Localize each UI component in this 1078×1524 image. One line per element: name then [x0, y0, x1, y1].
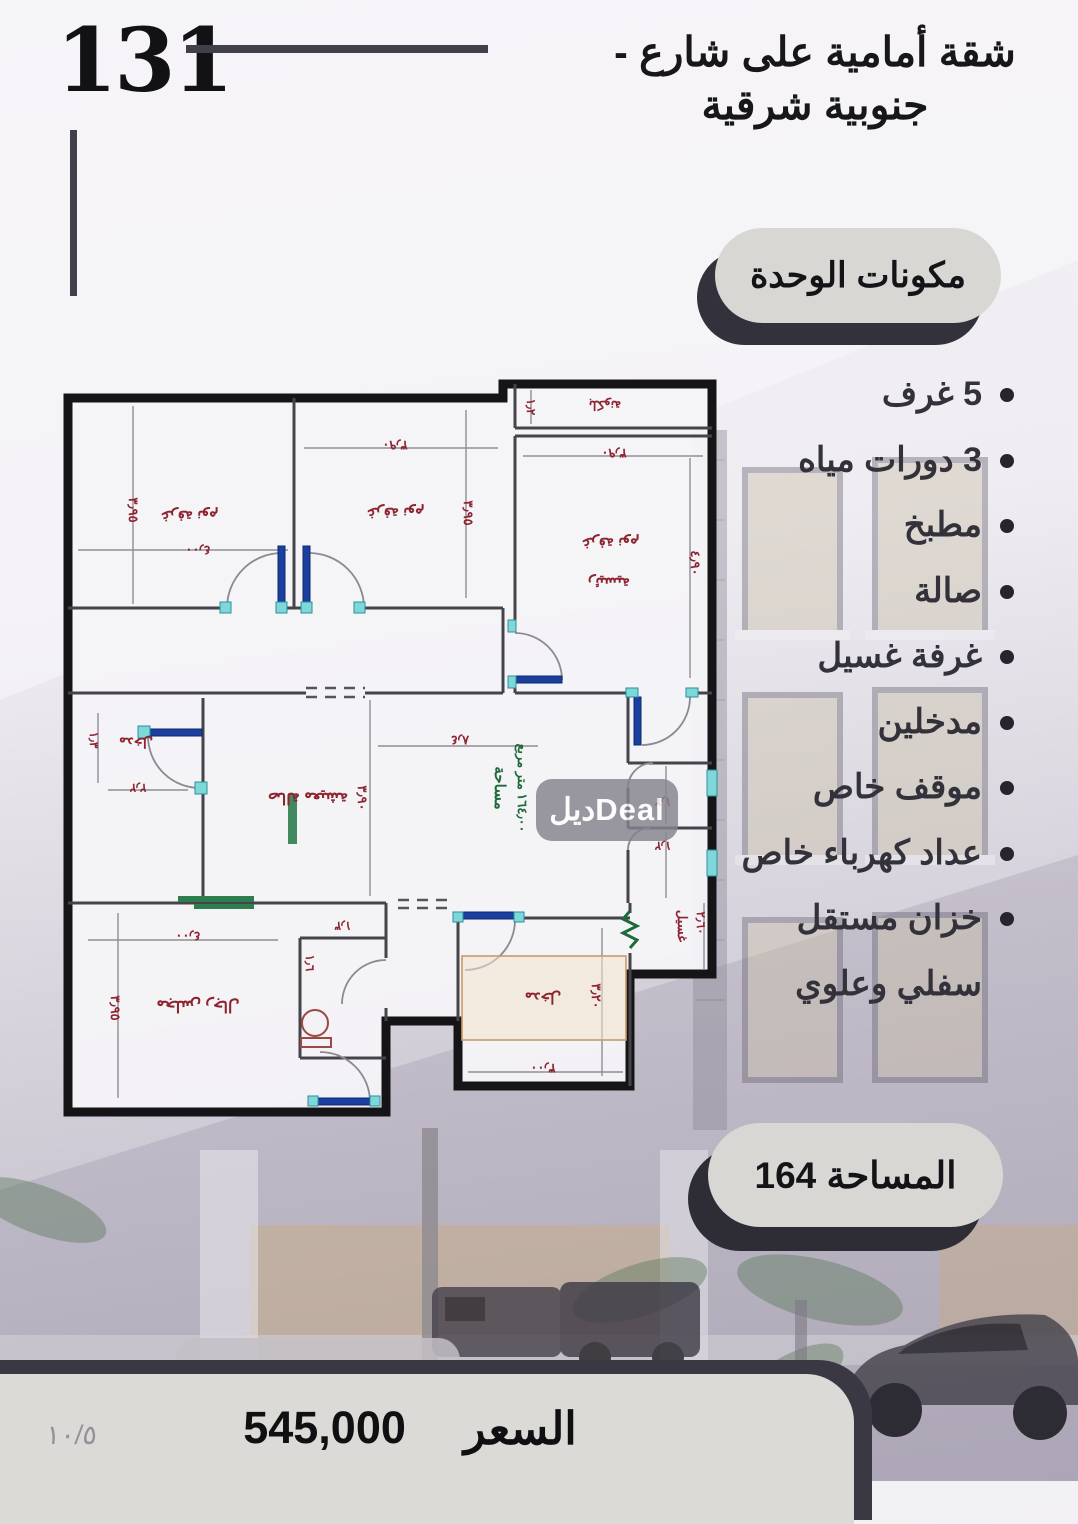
svg-text:٣٫٩٥: ٣٫٩٥	[126, 497, 141, 522]
watermark-badge: ديلDeal	[536, 779, 678, 841]
list-item: صالة	[678, 559, 1014, 625]
svg-text:١٦٤٫٠٠ متر مربع: ١٦٤٫٠٠ متر مربع	[514, 743, 530, 832]
svg-text:مدخل: مدخل	[119, 735, 153, 751]
list-item: مدخلين	[678, 690, 1014, 756]
svg-text:صالة معيشة: صالة معيشة	[268, 789, 348, 806]
list-item-label: مطبخ	[904, 493, 982, 559]
bullet-icon	[1000, 847, 1014, 861]
list-item-label: 3 دورات مياه	[798, 428, 982, 494]
svg-text:١٫٣: ١٫٣	[334, 919, 351, 933]
svg-text:٣٫٠٠: ٣٫٠٠	[530, 1061, 555, 1076]
list-item: مطبخ	[678, 493, 1014, 559]
svg-text:٣٫٩٥: ٣٫٩٥	[461, 500, 476, 525]
bullet-icon	[1000, 781, 1014, 795]
svg-text:١٫٢: ١٫٢	[524, 399, 538, 416]
svg-text:غرفة نوم: غرفة نوم	[161, 507, 218, 524]
svg-text:مساحة: مساحة	[491, 766, 508, 809]
svg-text:٣٫٩٠: ٣٫٩٠	[601, 446, 626, 461]
list-item: خزان مستقل سفلي وعلوي	[678, 886, 1014, 1017]
svg-text:٢٫٢: ٢٫٢	[129, 781, 146, 795]
svg-text:غرفة نوم: غرفة نوم	[367, 504, 424, 521]
components-heading-pill: مكونات الوحدة	[715, 228, 1001, 323]
list-item: موقف خاص	[678, 755, 1014, 821]
price-band: السعر 545,000	[0, 1374, 854, 1524]
list-item-label: موقف خاص	[813, 755, 982, 821]
page-indicator: ١٠/٥	[44, 1420, 98, 1451]
bullet-icon	[1000, 585, 1014, 599]
list-item-label: 5 غرف	[882, 362, 982, 428]
svg-text:٣٫٩٠: ٣٫٩٠	[382, 438, 407, 453]
price-value: 545,000	[243, 1402, 406, 1454]
svg-text:٤٫٠٠: ٤٫٠٠	[185, 543, 210, 558]
bullet-icon	[1000, 388, 1014, 402]
svg-text:٨٫٤: ٨٫٤	[451, 733, 470, 748]
list-item-label: عداد كهرباء خاص	[741, 821, 982, 887]
svg-text:٣٫٢٠: ٣٫٢٠	[589, 983, 604, 1008]
svg-text:رئيسية: رئيسية	[588, 574, 630, 591]
svg-text:٣٫٩٥: ٣٫٩٥	[108, 995, 123, 1020]
page-title-line2: جنوبية شرقية	[586, 79, 1044, 132]
svg-text:١٫٦: ١٫٦	[303, 955, 317, 972]
price-label: السعر	[464, 1402, 577, 1455]
list-item: غرفة غسيل	[678, 624, 1014, 690]
list-item: عداد كهرباء خاص	[678, 821, 1014, 887]
svg-text:٤٫٠٠: ٤٫٠٠	[175, 929, 200, 944]
page-title: شقة أمامية على شارع - جنوبية شرقية	[586, 26, 1044, 132]
area-pill: المساحة 164	[708, 1123, 1003, 1227]
svg-text:مجلس رجال: مجلس رجال	[156, 996, 239, 1014]
svg-text:١٫٢: ١٫٢	[654, 839, 671, 853]
bullet-icon	[1000, 650, 1014, 664]
bullet-icon	[1000, 454, 1014, 468]
list-item-label: صالة	[914, 559, 982, 625]
floor-plan: مساحة ١٦٤٫٠٠ متر مربع غرفة نوم ٣٫٩٥ ٤٫٠٠…	[58, 376, 720, 1120]
svg-text:غرفة نوم: غرفة نوم	[582, 534, 639, 551]
list-item: 5 غرف	[678, 362, 1014, 428]
bullet-icon	[1000, 716, 1014, 730]
components-heading-label: مكونات الوحدة	[750, 256, 966, 296]
list-item-label: خزان مستقل سفلي وعلوي	[730, 886, 982, 1017]
list-item-label: مدخلين	[878, 690, 982, 756]
unit-number: 131	[56, 8, 231, 112]
svg-text:٣٫٩٠: ٣٫٩٠	[355, 785, 370, 810]
area-pill-label: المساحة 164	[755, 1154, 957, 1197]
bullet-icon	[1000, 519, 1014, 533]
header-divider-horizontal	[186, 45, 488, 53]
svg-text:بلكونة: بلكونة	[589, 397, 621, 413]
svg-text:١٫٣: ١٫٣	[87, 732, 101, 749]
bullet-icon	[1000, 912, 1014, 926]
page-title-line1: شقة أمامية على شارع -	[586, 26, 1044, 79]
components-list: 5 غرف 3 دورات مياه مطبخ صالة غرفة غسيل م…	[678, 362, 1014, 1017]
list-item-label: غرفة غسيل	[817, 624, 982, 690]
list-item: 3 دورات مياه	[678, 428, 1014, 494]
svg-text:مدخل: مدخل	[525, 989, 562, 1006]
header-divider-vertical	[70, 130, 77, 296]
